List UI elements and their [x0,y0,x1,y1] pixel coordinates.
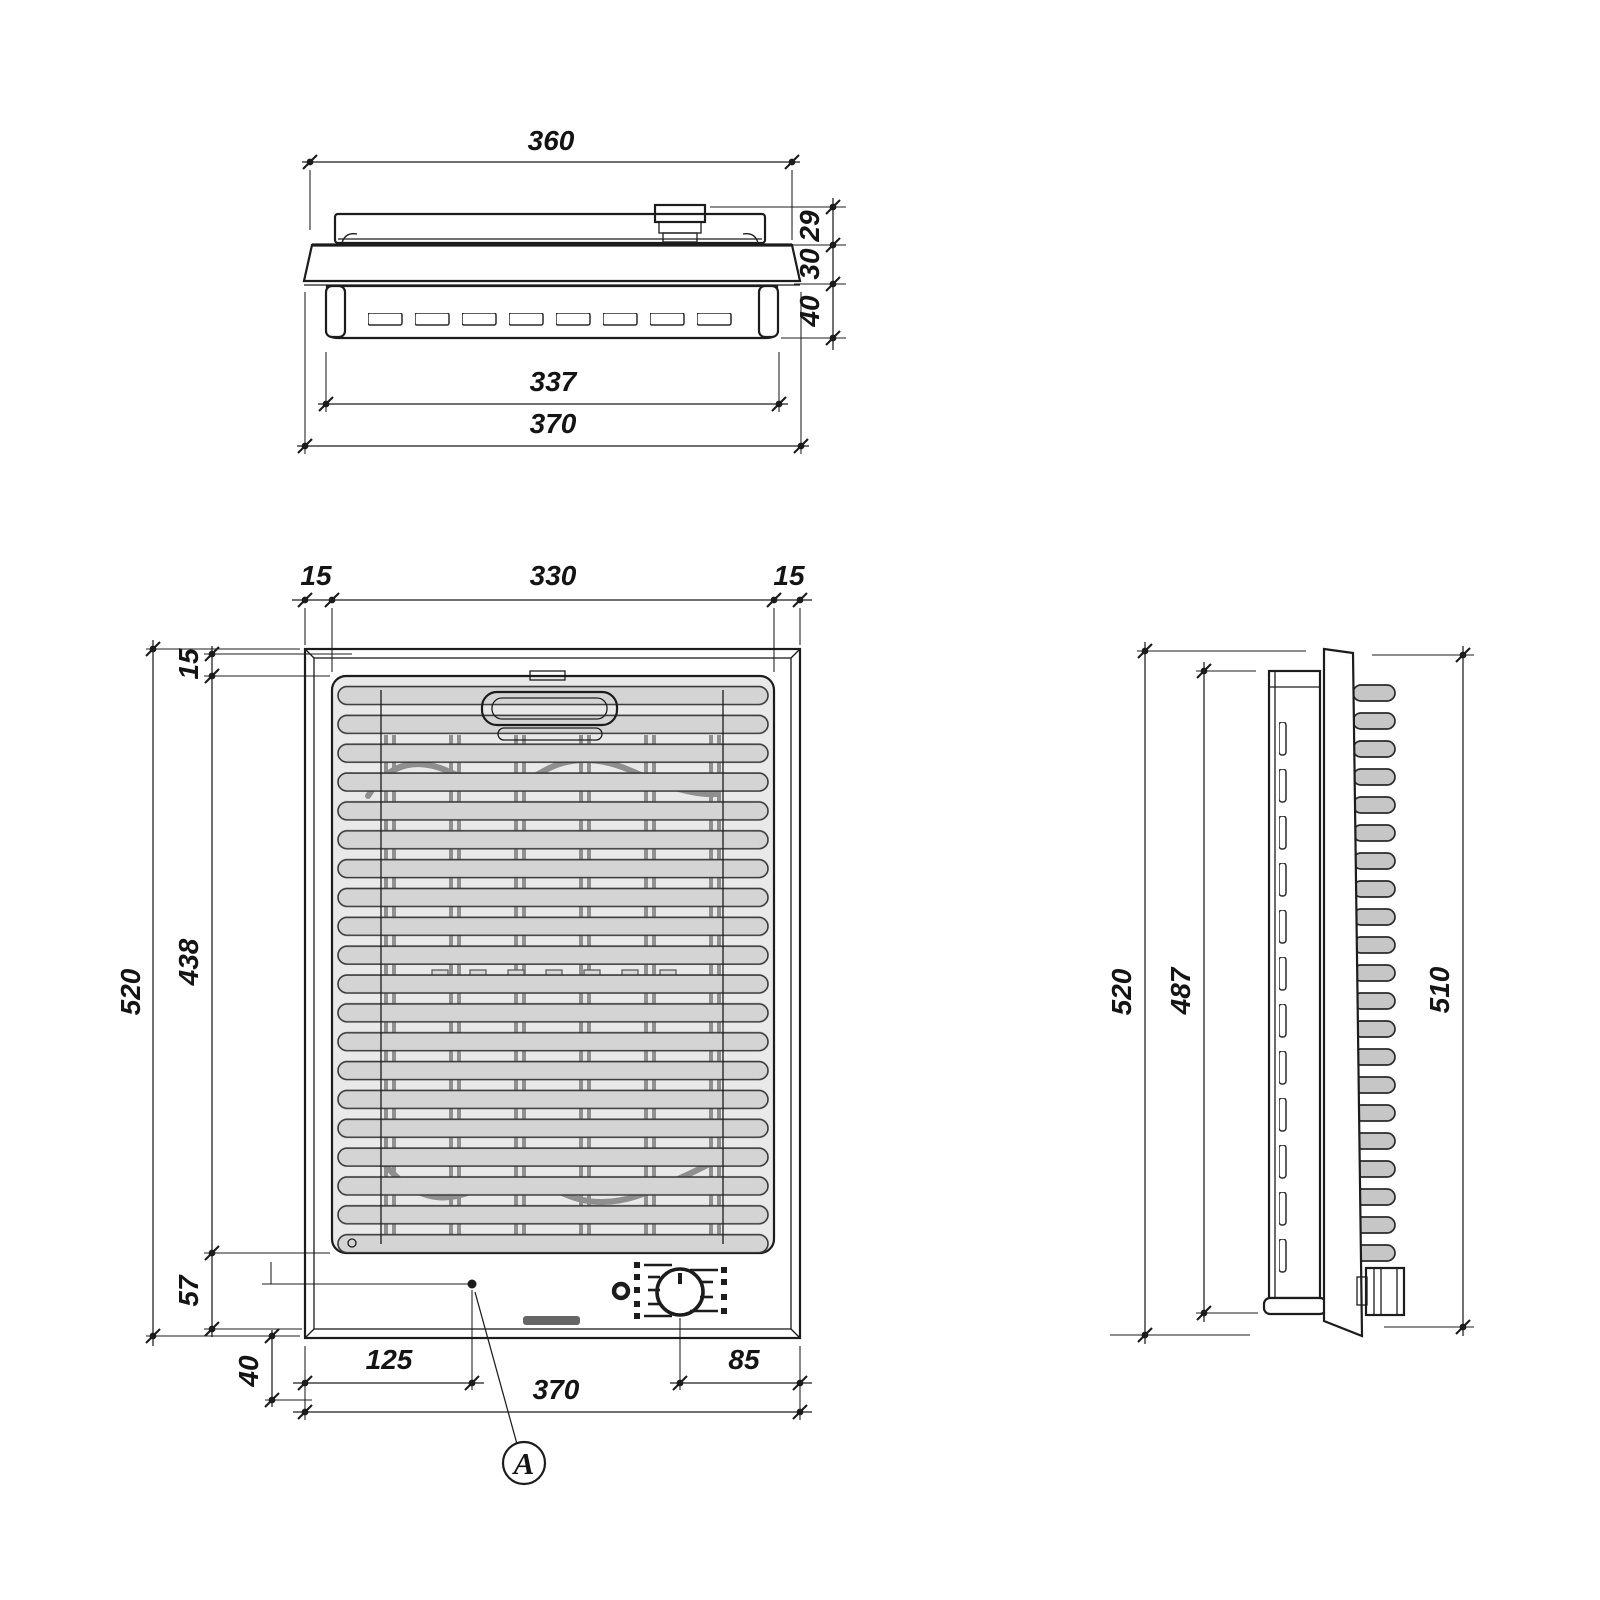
side-object [1264,649,1404,1336]
elevation-trim [304,245,800,281]
dim-label-front-panel-height: 57 [173,1274,204,1307]
front-view: 15 330 15 520 15 438 57 40 [115,560,812,1484]
dim-label-elevation-inner-width: 337 [530,366,578,397]
side-knob [1366,1268,1404,1315]
dim-label-front-under-depth: 40 [233,1355,264,1388]
elevation-view: 360 29 30 40 337 370 [297,125,846,454]
indicator-light [614,1284,628,1298]
dim-label-front-grate-height: 438 [173,938,204,986]
grate-slats [336,682,770,1253]
dim-label-elevation-overall-width: 370 [530,408,577,439]
dim-label-elevation-above-counter: 29 [794,210,825,243]
dim-label-front-grate-width: 330 [530,560,577,591]
dim-label-side-body-height: 487 [1165,966,1196,1015]
elevation-vent-slots [368,313,744,326]
dim-label-front-knob-offset: 85 [728,1344,760,1375]
dim-label-side-grate-height: 510 [1424,966,1455,1013]
dim-label-side-overall-height: 520 [1106,968,1137,1015]
dim-label-front-overall-width: 370 [533,1374,580,1405]
dim-label-front-overall-height: 520 [115,968,146,1015]
elevation-right-bracket [759,286,778,337]
dim-label-front-side-top-inset: 15 [173,648,204,680]
side-view: 520 487 510 [1106,642,1474,1344]
elevation-under-box [327,286,777,338]
side-vent-slots [1279,722,1287,1286]
dim-label-elevation-grate-width: 360 [528,125,575,156]
dim-label-elevation-trim-height: 30 [794,248,825,280]
bbq-grill-dimension-drawing: 360 29 30 40 337 370 [0,0,1600,1600]
technical-drawing-page: 360 29 30 40 337 370 [0,0,1600,1600]
elevation-left-bracket [326,286,345,337]
dim-label-front-callout-offset: 125 [366,1344,413,1375]
front-object [305,649,800,1338]
dim-label-elevation-under-counter: 40 [794,295,825,328]
side-body [1269,671,1320,1298]
dim-label-front-top-right-inset: 15 [773,560,805,591]
elevation-object [304,205,800,338]
brand-logo [523,1316,580,1325]
dim-label-front-top-left-inset: 15 [300,560,332,591]
side-bottom-plate [1264,1298,1326,1314]
callout-a-label: A [512,1446,535,1481]
